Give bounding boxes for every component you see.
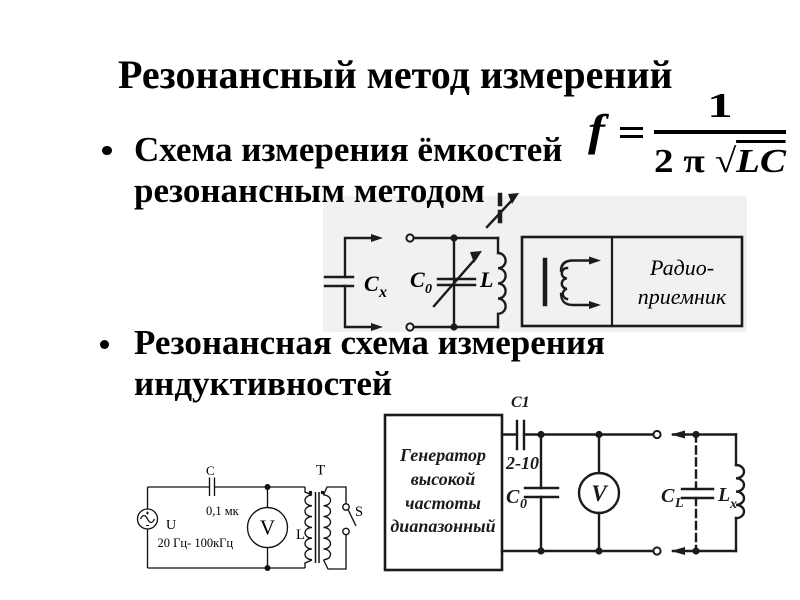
svg-text:x: x	[378, 284, 387, 301]
svg-text:x: x	[729, 497, 737, 512]
svg-text:приемник: приемник	[638, 284, 727, 309]
svg-text:L: L	[717, 484, 730, 506]
svg-text:0,1 мк: 0,1 мк	[206, 504, 240, 518]
svg-text:0: 0	[425, 282, 432, 297]
svg-text:20 Гц- 100кГц: 20 Гц- 100кГц	[158, 536, 234, 550]
svg-text:V: V	[591, 481, 608, 506]
svg-text:L: L	[479, 267, 493, 292]
svg-text:L: L	[674, 496, 684, 511]
svg-text:Генератор: Генератор	[399, 445, 486, 465]
svg-text:0: 0	[520, 497, 527, 512]
svg-text:C: C	[410, 267, 425, 292]
svg-text:диапазонный: диапазонный	[390, 516, 495, 536]
svg-text:частоты: частоты	[405, 493, 481, 513]
svg-text:T: T	[316, 463, 325, 479]
svg-text:С: С	[661, 485, 675, 507]
svg-text:S: S	[355, 504, 363, 520]
svg-text:высокой: высокой	[411, 469, 476, 489]
svg-text:Радио-: Радио-	[649, 255, 714, 280]
svg-text:L: L	[296, 527, 305, 543]
svg-text:С: С	[506, 486, 520, 508]
svg-text:2-10: 2-10	[505, 453, 539, 473]
svg-text:C: C	[364, 271, 379, 296]
svg-text:V: V	[260, 516, 275, 540]
svg-text:U: U	[166, 518, 176, 533]
svg-text:C: C	[206, 463, 215, 478]
